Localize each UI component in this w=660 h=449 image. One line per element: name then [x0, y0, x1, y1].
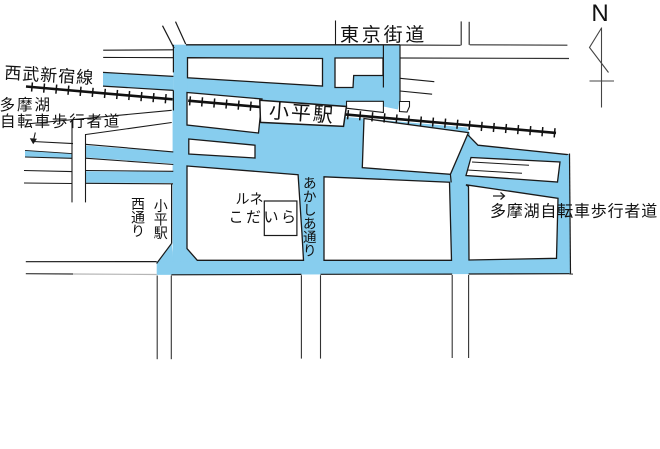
svg-text:多摩湖: 多摩湖 [0, 96, 52, 114]
svg-text:東京街道: 東京街道 [340, 24, 427, 46]
svg-text:小平駅: 小平駅 [268, 100, 336, 128]
svg-text:こだいら: こだいら [229, 209, 299, 226]
svg-text:小平駅: 小平駅 [154, 198, 168, 241]
svg-text:多摩湖自転車歩行者道: 多摩湖自転車歩行者道 [490, 203, 658, 221]
svg-text:ルネ: ルネ [236, 191, 264, 207]
svg-text:自転車歩行者道: 自転車歩行者道 [0, 113, 121, 131]
svg-text:N: N [591, 0, 608, 27]
svg-text:あかしあ通り: あかしあ通り [303, 176, 317, 259]
svg-text:西通り: 西通り [131, 196, 145, 239]
